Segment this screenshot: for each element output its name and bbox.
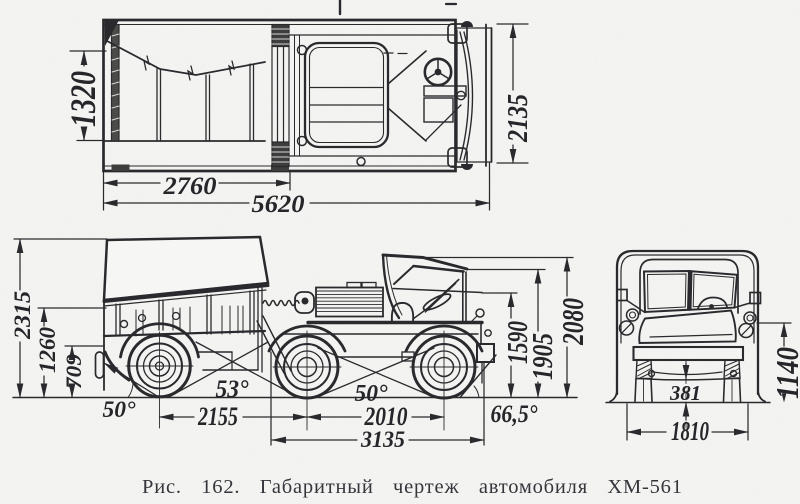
svg-text:3135: 3135 (360, 427, 405, 452)
svg-text:5620: 5620 (252, 191, 306, 218)
svg-text:1810: 1810 (671, 416, 709, 446)
svg-text:53°: 53° (216, 376, 249, 403)
svg-text:709: 709 (61, 354, 86, 389)
svg-text:2315: 2315 (10, 291, 35, 340)
svg-text:66,5°: 66,5° (491, 401, 538, 428)
svg-text:2155: 2155 (197, 402, 238, 431)
svg-text:381: 381 (669, 381, 701, 405)
svg-text:1320: 1320 (63, 71, 103, 127)
svg-text:2135: 2135 (502, 94, 534, 143)
svg-text:50°: 50° (103, 397, 137, 422)
svg-text:2080: 2080 (555, 298, 590, 346)
svg-text:2760: 2760 (162, 173, 217, 200)
svg-text:1260: 1260 (35, 327, 60, 374)
svg-text:1140: 1140 (769, 347, 800, 399)
svg-text:Рис. 162. Габаритный чертеж ав: Рис. 162. Габаритный чертеж автомобиля Х… (142, 476, 683, 498)
